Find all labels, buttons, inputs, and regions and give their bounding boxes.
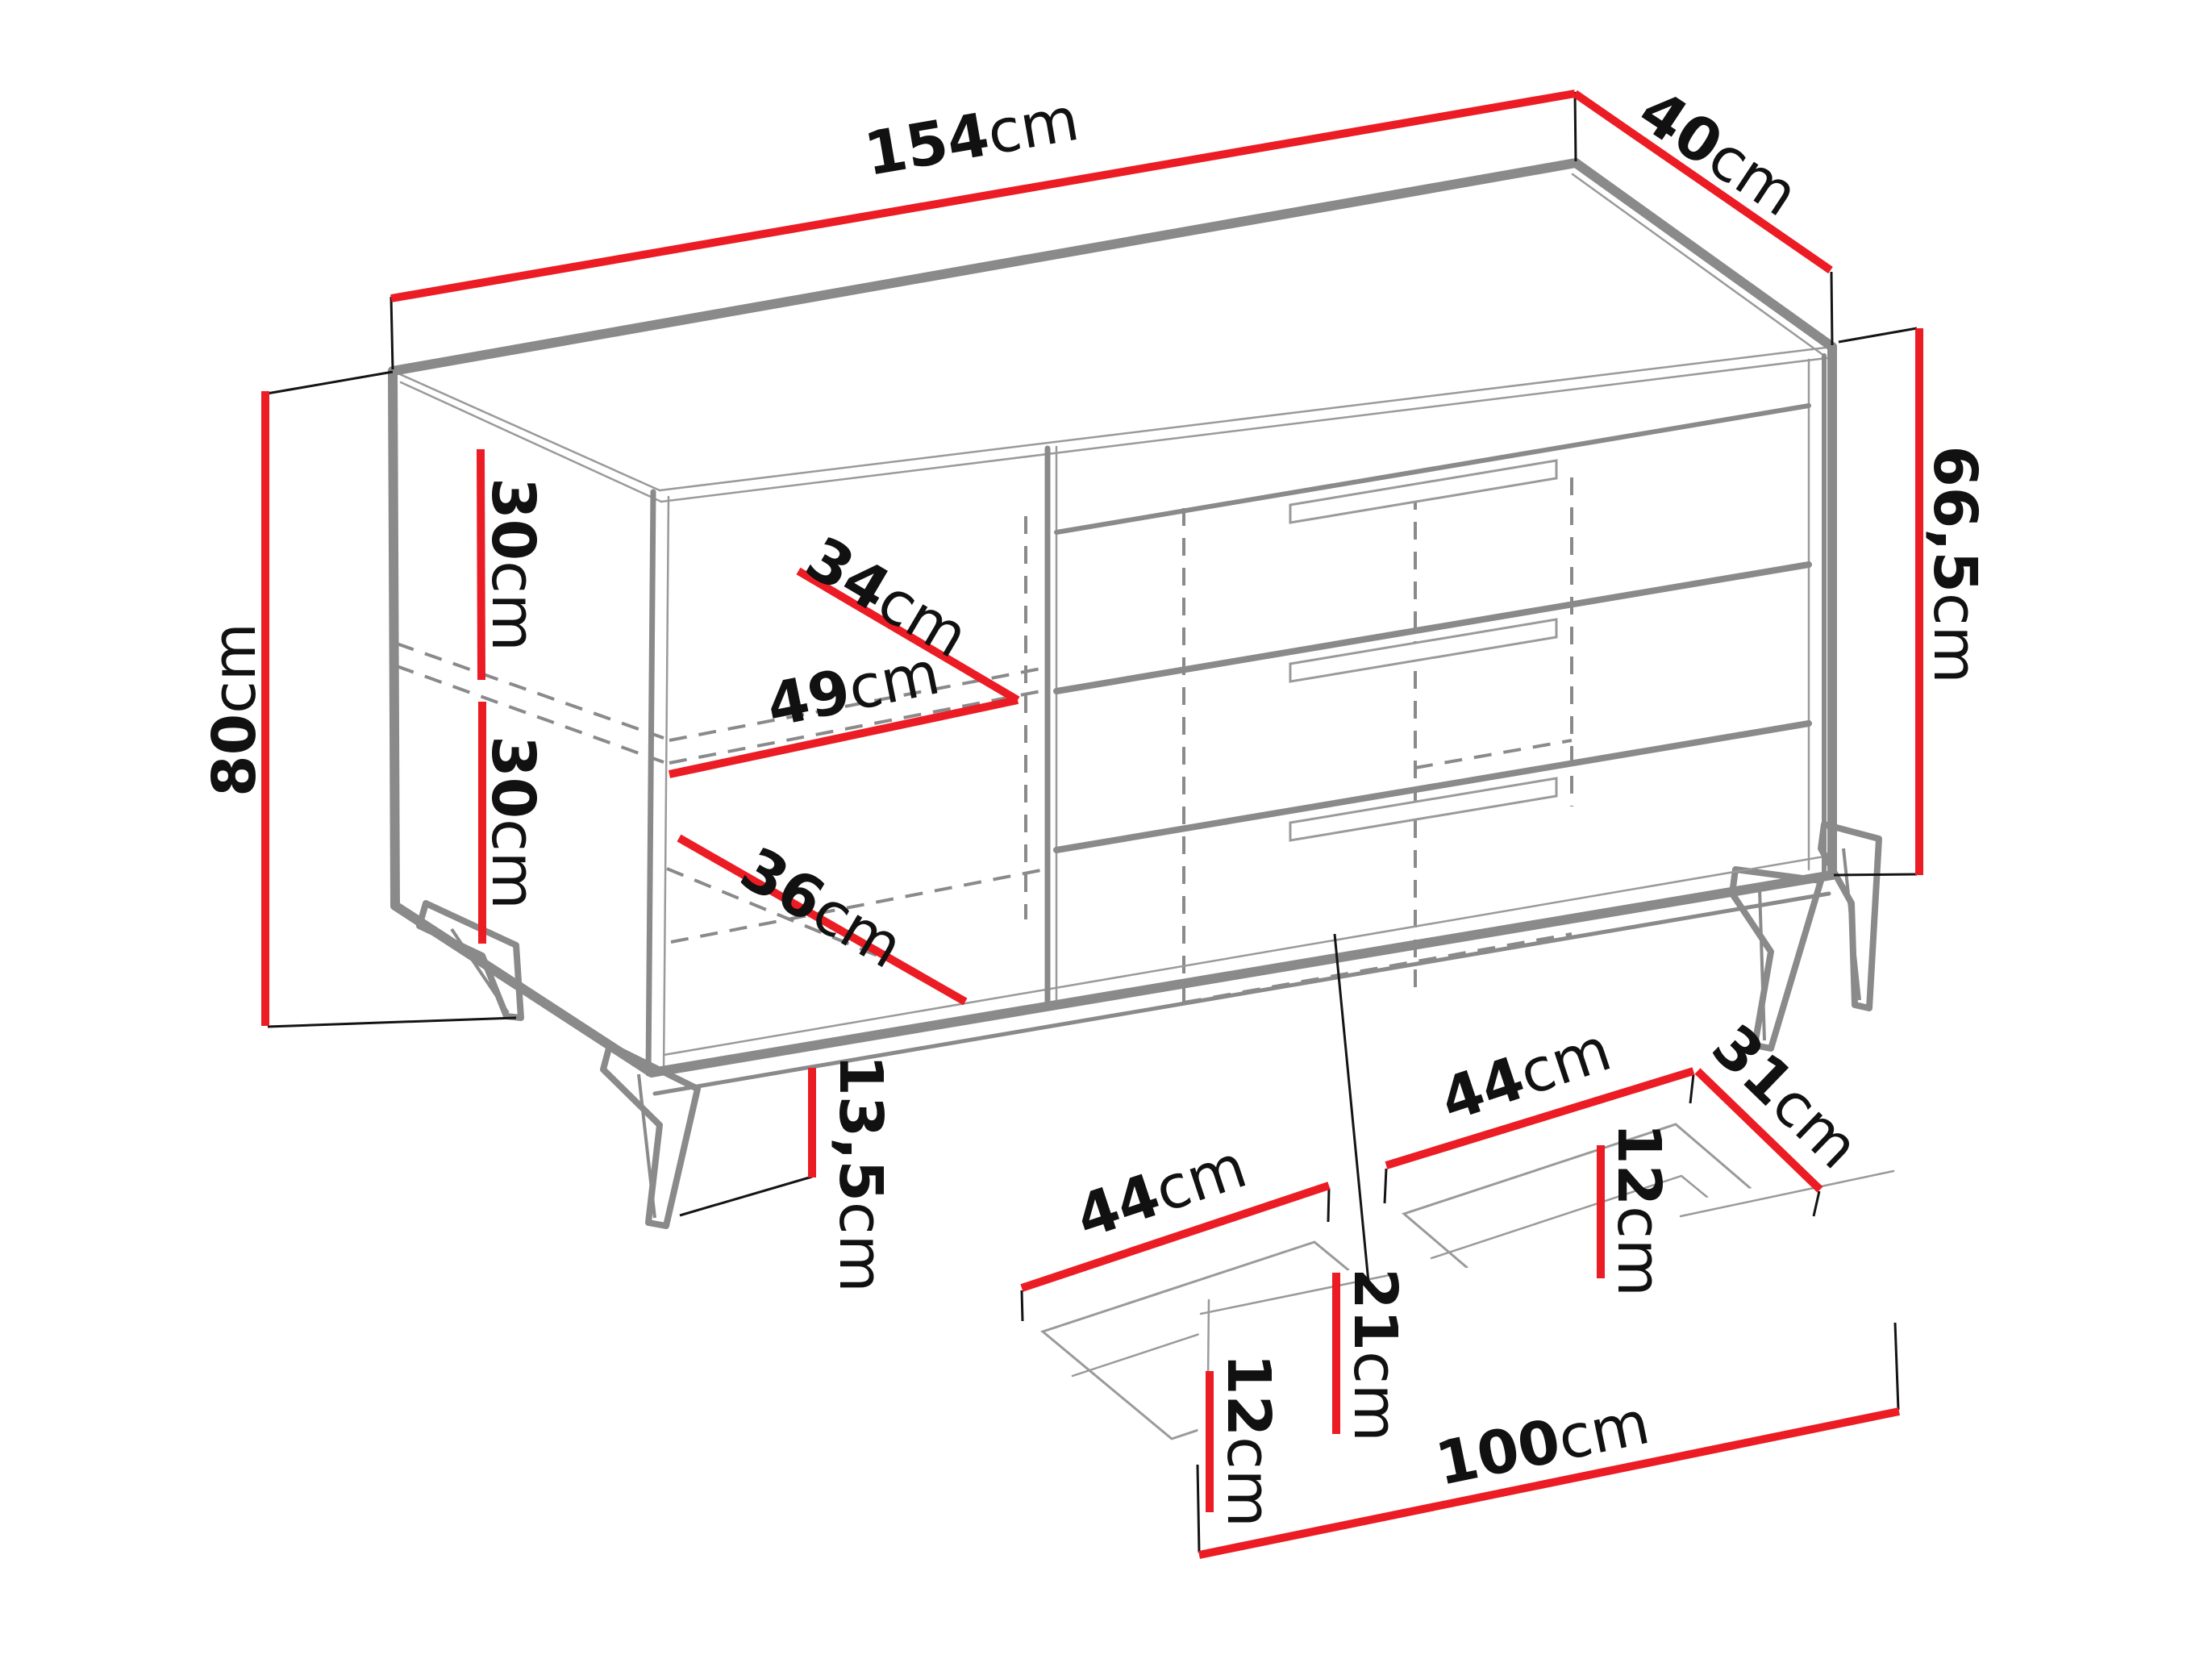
dim-label-shelf-30-bottom: 30cm <box>478 736 548 910</box>
dim-label-drawer-right-44: 44cm <box>1432 1015 1619 1136</box>
dim-label-drawer-left-12: 12cm <box>1214 1353 1283 1528</box>
dim-label-total-height-80: 80cm <box>200 623 269 797</box>
dim-label-drawer-front-21: 21cm <box>1340 1268 1410 1442</box>
dimension-diagram: 154cm 40cm 66,5cm 80cm 30cm 30cm 34cm 49… <box>0 0 2212 1659</box>
cabinet-body <box>393 163 1879 1226</box>
dim-label-body-height-665: 66,5cm <box>1920 445 1989 683</box>
dim-label-drawer-left-44: 44cm <box>1068 1132 1255 1253</box>
dim-label-leg-height-135: 13,5cm <box>826 1054 895 1292</box>
dim-label-drawer-right-12: 12cm <box>1604 1123 1673 1297</box>
dim-label-shelf-30-top: 30cm <box>478 477 548 652</box>
cabinet-left-side-panel <box>393 371 660 1073</box>
dim-label-width-154: 154cm <box>860 85 1084 190</box>
